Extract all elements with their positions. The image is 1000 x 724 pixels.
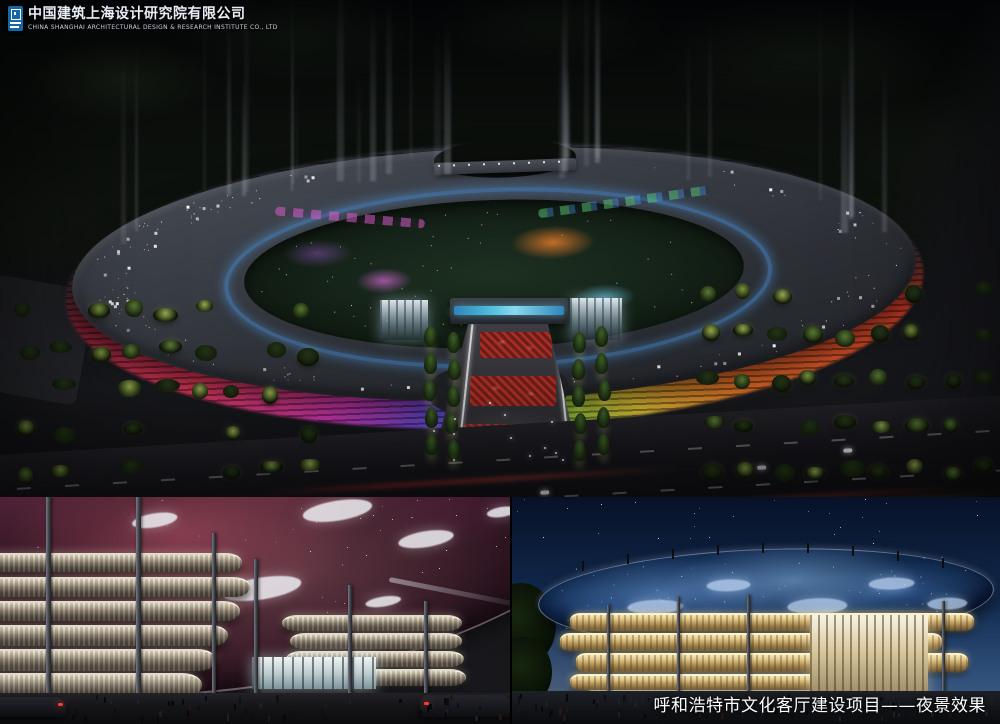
tree [803, 326, 823, 343]
tree [702, 324, 720, 341]
person-silhouette [479, 706, 481, 711]
person-silhouette [205, 696, 207, 702]
facade-band [282, 615, 462, 631]
tree [91, 347, 110, 361]
person-silhouette [447, 698, 449, 706]
west-entrance-atrium [380, 300, 428, 340]
conifer-tree [425, 407, 438, 428]
canopy-light-disc [365, 594, 402, 610]
person-silhouette [499, 714, 502, 720]
person-silhouette [324, 703, 327, 708]
canopy-light-disc [301, 497, 373, 526]
facade-band [0, 553, 242, 572]
roof-mast [942, 558, 944, 568]
tree [734, 374, 750, 390]
person-silhouette [157, 716, 159, 724]
tree [88, 303, 109, 318]
light-beam [296, 72, 298, 179]
path-light [551, 421, 553, 423]
person-silhouette [445, 712, 447, 719]
roof-mast [582, 561, 584, 571]
red-paving-segment [480, 332, 552, 358]
canopy-sparkles [537, 558, 538, 559]
person-silhouette [618, 698, 620, 705]
light-beam [841, 56, 848, 233]
path-light [489, 402, 491, 404]
canopy-column [424, 601, 428, 703]
light-beam [687, 28, 689, 180]
tree [903, 324, 918, 340]
tree [974, 281, 993, 296]
canopy-column [677, 597, 680, 701]
person-silhouette [75, 709, 78, 716]
conifer-tree [448, 359, 461, 380]
light-beam [227, 8, 232, 195]
tree [14, 302, 30, 317]
tree [260, 461, 283, 472]
person-silhouette [525, 716, 528, 722]
tree [297, 348, 319, 366]
conifer-tree [598, 380, 611, 401]
sky-stars [512, 497, 513, 498]
conifer-tree [425, 434, 438, 455]
person-silhouette [137, 699, 139, 704]
tree [119, 460, 142, 474]
tree [973, 371, 995, 385]
person-silhouette [541, 706, 543, 712]
facade-band [290, 633, 462, 649]
logo-text-mark [10, 26, 19, 28]
tree [18, 467, 33, 484]
person-silhouette [259, 703, 262, 709]
canopy-column [46, 497, 51, 697]
person-silhouette [159, 711, 162, 716]
person-silhouette [561, 706, 563, 713]
garden-lights [68, 163, 69, 164]
person-silhouette [604, 695, 606, 700]
person-silhouette [630, 695, 632, 702]
person-silhouette [475, 716, 478, 721]
person-silhouette [399, 699, 402, 704]
tree [293, 303, 309, 320]
tree [159, 340, 182, 353]
roof-mast [717, 545, 719, 555]
roof-mast [762, 543, 764, 553]
sky-bridge [450, 298, 568, 324]
path-light [544, 447, 546, 449]
conifer-tree [424, 353, 437, 374]
canopy-column [942, 601, 945, 701]
tree [702, 464, 723, 480]
facade-band [0, 625, 228, 646]
header: 中国建筑上海设计研究院有限公司 CHINA SHANGHAI ARCHITECT… [8, 6, 278, 31]
person-silhouette [234, 704, 236, 710]
canopy-light-disc [868, 577, 914, 591]
canopy-light-disc [486, 505, 510, 520]
car [843, 448, 852, 453]
person-silhouette [839, 716, 841, 721]
person-silhouette [239, 697, 241, 703]
roof-mast [672, 549, 674, 559]
tree [298, 459, 322, 470]
canopy-light-disc [927, 597, 967, 610]
tree [906, 459, 923, 474]
car [757, 465, 766, 470]
car [0, 697, 66, 717]
canopy-column [136, 497, 141, 699]
light-beam [386, 0, 392, 174]
presentation-board: 呼和浩特市文化客厅建设项目——夜景效果 中国建筑上海设计研究院有限公司 CHIN… [0, 0, 1000, 724]
tree [734, 420, 753, 432]
conifer-tree [574, 413, 587, 434]
roof-mast [807, 543, 809, 553]
person-silhouette [245, 708, 247, 715]
company-logo [8, 6, 23, 31]
tree [801, 419, 818, 436]
facade-band [0, 601, 240, 621]
tree [153, 308, 178, 322]
person-silhouette [268, 715, 270, 722]
tree [773, 289, 792, 305]
person-silhouette [322, 712, 324, 717]
light-beam [121, 47, 126, 244]
tree [17, 420, 35, 436]
light-beam [849, 132, 853, 220]
tree [53, 427, 77, 443]
company-name-en: CHINA SHANGHAI ARCHITECTURAL DESIGN & RE… [28, 24, 278, 31]
light-beam [595, 0, 600, 158]
person-silhouette [182, 699, 184, 705]
light-beam [882, 61, 886, 231]
person-silhouette [623, 695, 626, 702]
tree [974, 329, 993, 341]
person-silhouette [618, 712, 620, 717]
facade-band [0, 649, 216, 671]
tree [869, 369, 887, 386]
tree [155, 379, 180, 392]
person-silhouette [296, 713, 298, 719]
roof-mast [897, 551, 899, 561]
person-silhouette [419, 710, 422, 714]
tree [767, 327, 787, 340]
aerial-night-rendering [0, 0, 1000, 497]
light-beam [559, 27, 565, 178]
person-silhouette [621, 709, 623, 714]
plaza-night-rendering: 呼和浩特市文化客厅建设项目——夜景效果 [512, 497, 1000, 724]
roof-mast [627, 554, 629, 564]
person-silhouette [518, 708, 520, 712]
conifer-tree [423, 380, 436, 401]
car [540, 490, 549, 495]
light-beam [135, 40, 138, 231]
roof-mast [852, 546, 854, 556]
tree [943, 418, 958, 433]
person-silhouette [566, 706, 568, 712]
lobby-glass [252, 657, 376, 689]
person-silhouette [276, 695, 279, 703]
taillight-trail [541, 485, 970, 497]
tree [192, 383, 208, 398]
canopy-nebula-rendering [0, 497, 510, 724]
logo-text-mark [10, 22, 21, 24]
person-silhouette [991, 696, 993, 702]
conifer-tree [573, 332, 586, 353]
person-silhouette [283, 715, 286, 721]
tree [840, 460, 865, 477]
tree [905, 285, 922, 303]
tree [122, 344, 139, 358]
light-beam [337, 0, 344, 181]
canopy-column [747, 595, 750, 701]
person-silhouette [250, 715, 253, 721]
person-silhouette [429, 704, 432, 711]
project-caption: 呼和浩特市文化客厅建设项目——夜景效果 [654, 691, 987, 716]
person-silhouette [110, 701, 112, 706]
tree [772, 375, 791, 392]
person-silhouette [432, 714, 434, 720]
light-beam [291, 0, 293, 191]
tree [834, 415, 857, 429]
tree [124, 423, 142, 435]
path-light [529, 455, 531, 457]
tree [125, 299, 142, 317]
canopy-column [607, 605, 610, 701]
light-beam [819, 0, 822, 200]
person-silhouette [84, 716, 87, 722]
lobby-glass [810, 615, 928, 703]
conifer-tree [447, 386, 460, 407]
person-silhouette [634, 700, 637, 707]
light-beam [434, 23, 441, 176]
person-silhouette [104, 697, 106, 703]
canopy-light-disc [706, 579, 750, 593]
person-silhouette [72, 715, 75, 719]
tree [267, 342, 286, 357]
person-silhouette [227, 713, 229, 720]
company-name-cn: 中国建筑上海设计研究院有限公司 [28, 6, 278, 22]
person-silhouette [96, 695, 98, 700]
light-beam [444, 23, 451, 173]
canopy-column [212, 533, 216, 701]
tree [774, 464, 795, 482]
tree [869, 465, 887, 479]
person-silhouette [563, 714, 566, 721]
tree [871, 325, 889, 341]
light-beam [410, 0, 412, 157]
person-silhouette [325, 716, 328, 721]
light-beam [370, 3, 376, 181]
company-name-block: 中国建筑上海设计研究院有限公司 CHINA SHANGHAI ARCHITECT… [28, 6, 278, 31]
person-silhouette [648, 698, 650, 702]
tree [733, 324, 752, 336]
person-silhouette [450, 695, 453, 700]
logo-glyph [11, 9, 21, 20]
canopy-light-disc [397, 527, 455, 552]
tree [975, 459, 992, 473]
light-beam [584, 0, 589, 166]
tree [735, 283, 751, 299]
light-beam [357, 76, 361, 182]
canopy-column [254, 559, 258, 701]
tree [301, 427, 317, 443]
taillight [58, 703, 63, 706]
sky-stars [0, 497, 1, 498]
path-light [555, 452, 557, 454]
conifer-tree [572, 359, 585, 380]
tree [117, 380, 142, 397]
person-silhouette [188, 705, 191, 711]
person-silhouette [141, 717, 143, 724]
person-silhouette [349, 698, 351, 706]
conifer-tree [424, 326, 437, 347]
person-silhouette [545, 701, 548, 707]
tree [20, 345, 40, 360]
tree [799, 370, 815, 386]
tree [835, 330, 854, 347]
conifer-tree [447, 332, 460, 353]
conifer-tree [573, 440, 586, 461]
light-beam [708, 8, 711, 177]
path-light [453, 459, 455, 461]
person-silhouette [197, 706, 200, 710]
canopy-column [348, 585, 352, 703]
